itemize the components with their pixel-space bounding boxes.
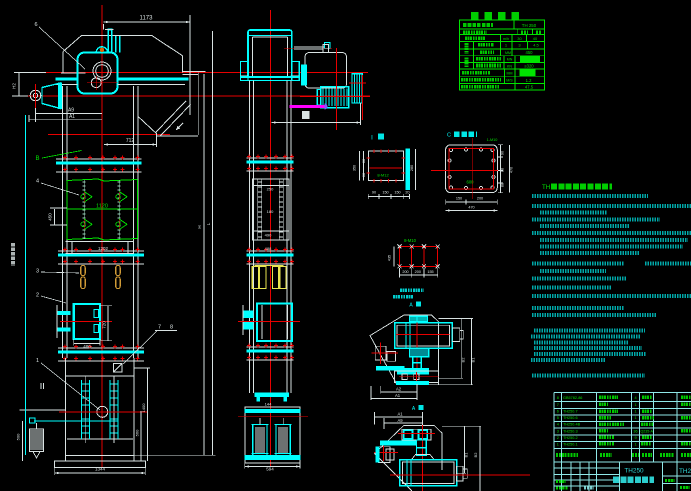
svg-text:88: 88 (501, 183, 505, 187)
svg-text:7: 7 (158, 325, 161, 331)
svg-text:7: 7 (557, 403, 559, 407)
svg-text:TH250.4B: TH250.4B (563, 423, 581, 427)
svg-text:6: 6 (34, 22, 37, 28)
svg-text:500: 500 (16, 433, 21, 440)
svg-text:TH250.3: TH250.3 (563, 429, 578, 433)
svg-text:3: 3 (557, 429, 559, 433)
svg-text:KN: KN (507, 64, 512, 68)
svg-text:2: 2 (36, 293, 39, 299)
svg-text:8-M10: 8-M10 (404, 238, 417, 243)
svg-text:20: 20 (405, 191, 409, 195)
svg-text:TH250.6: TH250.6 (563, 416, 578, 420)
svg-text:TH 250: TH 250 (522, 23, 537, 28)
svg-text:H2: H2 (12, 83, 17, 89)
svg-text:150: 150 (394, 191, 400, 195)
svg-text:A2: A2 (396, 387, 402, 392)
svg-text:A1: A1 (69, 114, 75, 120)
svg-text:GB5782-86: GB5782-86 (563, 396, 582, 400)
svg-text:1.2: 1.2 (526, 78, 532, 83)
svg-text:47.5: 47.5 (525, 84, 534, 89)
svg-text:40: 40 (533, 36, 538, 41)
svg-text:m/h: m/h (503, 37, 509, 41)
svg-text:B2: B2 (461, 357, 466, 363)
svg-text:1202: 1202 (98, 246, 109, 251)
svg-text:1: 1 (634, 442, 636, 446)
svg-text:1: 1 (634, 416, 636, 420)
svg-text:1: 1 (634, 403, 636, 407)
svg-text:3: 3 (36, 269, 39, 275)
svg-text:8-M12: 8-M12 (377, 173, 389, 178)
svg-text:A1: A1 (395, 393, 401, 398)
svg-text:TH250.2: TH250.2 (563, 436, 578, 440)
svg-text:TH25: TH25 (679, 468, 691, 475)
svg-text:594: 594 (266, 467, 274, 472)
svg-text:MM: MM (507, 71, 513, 75)
svg-text:6: 6 (557, 410, 559, 414)
svg-text:1173: 1173 (140, 16, 154, 22)
svg-text:1400: 1400 (141, 403, 146, 413)
svg-text:B1: B1 (471, 357, 476, 363)
svg-text:88: 88 (362, 159, 366, 163)
svg-text:36: 36 (633, 429, 637, 433)
svg-text:8: 8 (170, 325, 173, 331)
svg-text:200: 200 (402, 270, 408, 274)
svg-text:1120: 1120 (96, 204, 108, 210)
svg-text:488: 488 (265, 246, 272, 251)
svg-text:TH: TH (542, 184, 550, 191)
svg-text:2: 2 (557, 436, 559, 440)
svg-text:200: 200 (477, 197, 483, 201)
svg-text:90: 90 (372, 191, 376, 195)
svg-text:≥320: ≥320 (524, 64, 534, 69)
svg-text:150: 150 (382, 191, 388, 195)
svg-text:Q235-A: Q235-A (641, 429, 654, 433)
svg-text:250: 250 (267, 187, 274, 192)
svg-text:280: 280 (410, 165, 414, 171)
svg-text:200: 200 (415, 270, 421, 274)
svg-text:450: 450 (526, 50, 534, 55)
svg-text:30: 30 (517, 36, 522, 41)
svg-text:5: 5 (557, 416, 559, 420)
svg-text:1-M10: 1-M10 (487, 138, 498, 142)
svg-text:90: 90 (501, 151, 505, 155)
svg-text:4: 4 (36, 179, 39, 185)
svg-text:4: 4 (557, 423, 559, 427)
svg-text:1344: 1344 (95, 467, 106, 472)
svg-text:435: 435 (388, 255, 392, 261)
svg-text:A1: A1 (397, 412, 403, 417)
svg-text:450: 450 (48, 213, 53, 221)
svg-text:155: 155 (427, 270, 433, 274)
svg-text:C: C (447, 133, 451, 139)
svg-text:150: 150 (456, 197, 462, 201)
svg-text:88: 88 (362, 173, 366, 177)
svg-text:560: 560 (135, 429, 140, 436)
svg-text:9: 9 (634, 436, 636, 440)
svg-text:1: 1 (557, 442, 559, 446)
svg-text:88: 88 (501, 168, 505, 172)
svg-text:470: 470 (510, 167, 514, 173)
svg-text:A9: A9 (397, 418, 403, 423)
svg-text:480: 480 (83, 344, 91, 349)
svg-text:600: 600 (467, 180, 475, 185)
svg-text:144: 144 (265, 402, 272, 407)
svg-text:TH250.7: TH250.7 (563, 410, 578, 414)
svg-text:8: 8 (557, 396, 559, 400)
svg-text:720: 720 (102, 321, 107, 329)
svg-text:B1: B1 (464, 452, 469, 458)
svg-text:B2: B2 (473, 452, 478, 458)
svg-text:A9: A9 (68, 108, 74, 114)
svg-text:H: H (197, 225, 202, 228)
svg-text:4: 4 (634, 396, 636, 400)
svg-text:1: 1 (634, 410, 636, 414)
svg-text:TH250.1: TH250.1 (563, 442, 578, 446)
svg-text:350: 350 (353, 165, 357, 171)
svg-text:MM: MM (505, 51, 511, 55)
svg-text:TH250: TH250 (624, 467, 644, 474)
svg-text:1: 1 (36, 358, 39, 364)
svg-text:470: 470 (468, 206, 474, 210)
svg-text:B: B (35, 156, 39, 162)
svg-text:4.5: 4.5 (533, 43, 539, 48)
svg-text:M/S: M/S (506, 79, 513, 83)
svg-text:180: 180 (267, 209, 274, 214)
svg-text:490: 490 (265, 233, 272, 238)
svg-text:MN: MN (507, 58, 513, 62)
